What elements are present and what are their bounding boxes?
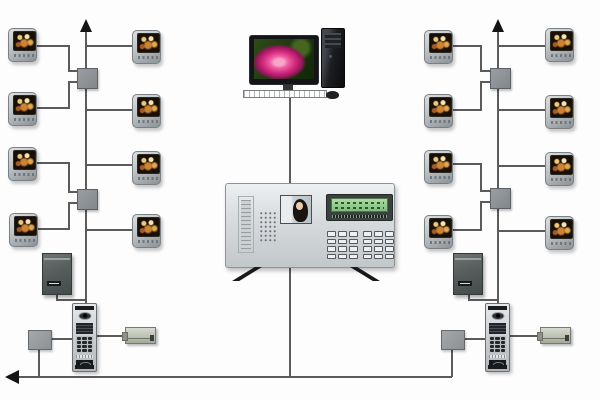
monitor-screen [550, 31, 573, 51]
psu-terminal-slot [47, 281, 61, 286]
indoor-video-monitor [132, 214, 161, 248]
monitor-screen [429, 97, 452, 117]
power-supply-unit [42, 253, 72, 295]
key-button [363, 239, 372, 245]
key-button [490, 345, 494, 348]
floor-distributor-box [490, 68, 511, 89]
stand-foot-left [232, 267, 262, 281]
monitor-screen [137, 154, 160, 174]
lock-seam [543, 338, 566, 339]
key-button [363, 231, 372, 237]
outdoor-door-station [485, 303, 510, 372]
door-station-footer [75, 365, 94, 369]
indoor-video-monitor [8, 147, 37, 181]
key-button [495, 349, 499, 352]
monitor-screen [429, 33, 452, 53]
door-station-header [75, 306, 94, 310]
key-button [338, 231, 347, 237]
indoor-video-monitor [545, 95, 574, 129]
monitor-screen [13, 150, 36, 170]
key-button [338, 254, 347, 260]
monitor-screen [137, 33, 160, 53]
key-button [495, 345, 499, 348]
caller-face [296, 202, 303, 210]
key-button [374, 246, 383, 252]
key-button [495, 341, 499, 344]
entry-junction-box [441, 330, 465, 350]
door-label-strip [76, 355, 93, 358]
stand-foot-right [350, 267, 380, 281]
lcd-text-row [335, 202, 384, 204]
key-button [327, 254, 336, 260]
key-button [385, 239, 394, 245]
monitor-buttons [430, 56, 450, 59]
monitor-buttons [14, 54, 34, 57]
key-button [363, 246, 372, 252]
monitor-screen [429, 218, 452, 238]
video-call-screen [280, 195, 312, 224]
monitor-buttons [138, 240, 158, 243]
door-keypad [76, 336, 93, 353]
pc-monitor [249, 35, 319, 85]
indoor-video-monitor [132, 30, 161, 64]
key-button [490, 349, 494, 352]
indoor-video-monitor [424, 150, 453, 184]
indoor-video-monitor [545, 152, 574, 186]
monitor-screen [137, 217, 160, 237]
pc-tower-case [321, 28, 345, 88]
floor-distributor-box [77, 189, 98, 210]
entry-junction-box [28, 330, 52, 350]
key-button [363, 254, 372, 260]
key-button [338, 239, 347, 245]
indoor-video-monitor [9, 213, 38, 247]
lcd-text-row [335, 207, 384, 209]
key-button [77, 341, 81, 344]
key-button [82, 337, 86, 340]
monitor-screen [550, 98, 573, 118]
camera-icon [491, 312, 504, 320]
lock-connector [565, 335, 569, 341]
key-button [77, 337, 81, 340]
keypad-group-left [327, 231, 358, 259]
key-button [327, 231, 336, 237]
lock-seam [128, 338, 151, 339]
monitor-buttons [551, 242, 571, 245]
key-button [349, 254, 358, 260]
indoor-video-monitor [545, 216, 574, 250]
power-supply-unit [453, 253, 483, 295]
indoor-video-monitor [545, 28, 574, 62]
key-button [82, 341, 86, 344]
directory-label-strip [238, 196, 254, 253]
monitor-buttons [138, 56, 158, 59]
door-station-footer [488, 365, 507, 369]
floor-distributor-box [77, 68, 98, 89]
key-button [385, 231, 394, 237]
monitor-screen [13, 95, 36, 115]
indoor-video-monitor [132, 94, 161, 128]
key-button [501, 337, 505, 340]
indoor-video-monitor [424, 94, 453, 128]
key-button [501, 349, 505, 352]
indoor-video-monitor [8, 92, 37, 126]
monitor-buttons [430, 176, 450, 179]
psu-cover-seam [44, 258, 70, 260]
door-label-strip [489, 355, 506, 358]
monitor-screen [550, 219, 573, 239]
key-button [490, 341, 494, 344]
pc-screen-rose-image [254, 39, 314, 79]
key-button [501, 345, 505, 348]
key-button [327, 246, 336, 252]
key-button [82, 345, 86, 348]
pc-keyboard [243, 90, 327, 98]
key-button [349, 231, 358, 237]
monitor-screen [13, 31, 36, 51]
key-button [501, 341, 505, 344]
pc-power-button-icon [329, 55, 332, 58]
monitor-buttons [430, 241, 450, 244]
key-button [374, 239, 383, 245]
lcd-display [326, 194, 393, 221]
key-button [88, 349, 92, 352]
key-button [327, 239, 336, 245]
monitor-screen [14, 216, 37, 236]
monitor-screen [550, 155, 573, 175]
key-button [349, 246, 358, 252]
floor-distributor-box [490, 188, 511, 209]
door-station-header [488, 306, 507, 310]
pc-mouse [326, 91, 339, 99]
key-button [374, 254, 383, 260]
monitor-buttons [138, 120, 158, 123]
lcd-caption-strip [332, 215, 387, 218]
lock-connector [150, 335, 154, 341]
indoor-video-monitor [8, 28, 37, 62]
key-button [338, 246, 347, 252]
lock-mount-tab [122, 332, 128, 341]
speaker-display-panel [76, 323, 93, 334]
monitor-buttons [551, 121, 571, 124]
psu-cover-seam [455, 258, 481, 260]
pc-drive-bays [325, 33, 341, 48]
camera-icon [78, 312, 91, 320]
indoor-video-monitor [132, 151, 161, 185]
monitor-screen [429, 153, 452, 173]
speaker-grille-icon [259, 211, 277, 242]
keypad [327, 231, 394, 259]
keypad-group-right [363, 231, 394, 259]
monitor-buttons [14, 173, 34, 176]
monitor-buttons [15, 239, 35, 242]
key-button [490, 337, 494, 340]
key-button [349, 239, 358, 245]
intercom-system-diagram [0, 0, 600, 400]
lcd-glass [331, 198, 388, 212]
electric-lock [540, 327, 571, 344]
outdoor-door-station [72, 303, 97, 372]
monitor-screen [137, 97, 160, 117]
key-button [77, 349, 81, 352]
key-button [385, 246, 394, 252]
key-button [385, 254, 394, 260]
psu-terminal-slot [458, 281, 472, 286]
key-button [374, 231, 383, 237]
guard-management-center [225, 183, 395, 268]
key-button [495, 337, 499, 340]
electric-lock [125, 327, 156, 344]
monitor-buttons [551, 54, 571, 57]
lock-mount-tab [537, 332, 543, 341]
key-button [88, 341, 92, 344]
monitor-buttons [138, 177, 158, 180]
monitor-buttons [430, 120, 450, 123]
indoor-video-monitor [424, 215, 453, 249]
speaker-display-panel [489, 323, 506, 334]
monitor-buttons [551, 178, 571, 181]
key-button [82, 349, 86, 352]
key-button [88, 345, 92, 348]
device-layer [0, 0, 600, 400]
monitor-buttons [14, 118, 34, 121]
key-button [88, 337, 92, 340]
door-keypad [489, 336, 506, 353]
key-button [77, 345, 81, 348]
indoor-video-monitor [424, 30, 453, 64]
